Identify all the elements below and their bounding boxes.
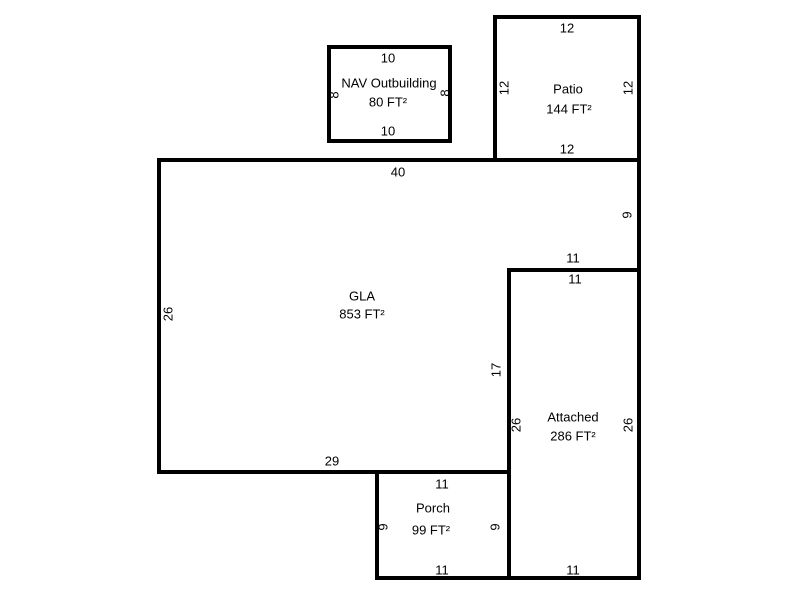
outbuilding-name: NAV Outbuilding <box>341 77 436 90</box>
porch-dim-right: 9 <box>489 523 502 530</box>
wall-outbuilding-top <box>327 45 452 49</box>
gla-dim-top: 40 <box>391 166 405 179</box>
patio-dim-top: 12 <box>560 22 574 35</box>
porch-area: 99 FT² <box>412 524 450 537</box>
patio-dim-left: 12 <box>498 81 511 95</box>
attached-dim-bottom: 11 <box>566 564 580 577</box>
attached-dim-top: 11 <box>568 273 582 286</box>
gla-dim-left: 26 <box>162 307 175 321</box>
gla-dim-notch-top: 11 <box>566 252 580 265</box>
wall-bottom-outer <box>375 576 641 580</box>
porch-dim-bottom: 11 <box>435 564 449 577</box>
wall-outbuilding-bottom <box>327 139 452 143</box>
gla-area: 853 FT² <box>339 308 385 321</box>
wall-right-outer <box>637 15 641 580</box>
gla-dim-right-upper: 9 <box>621 211 634 218</box>
outbuilding-dim-bottom: 10 <box>381 125 395 138</box>
gla-dim-inner-right: 17 <box>490 363 503 377</box>
outbuilding-dim-top: 10 <box>381 52 395 65</box>
patio-name: Patio <box>553 83 583 96</box>
patio-dim-right: 12 <box>622 81 635 95</box>
wall-patio-top <box>493 15 641 19</box>
porch-name: Porch <box>416 502 450 515</box>
patio-area: 144 FT² <box>546 103 592 116</box>
patio-dim-bottom: 12 <box>560 143 574 156</box>
wall-gla-top <box>157 158 641 162</box>
wall-gla-bottom <box>157 470 511 474</box>
attached-dim-left: 26 <box>510 418 523 432</box>
outbuilding-dim-right: 8 <box>439 89 452 96</box>
outbuilding-area: 80 FT² <box>369 96 407 109</box>
attached-dim-right: 26 <box>622 418 635 432</box>
gla-name: GLA <box>349 290 375 303</box>
porch-dim-left: 9 <box>377 523 390 530</box>
attached-area: 286 FT² <box>550 430 596 443</box>
outbuilding-dim-left: 8 <box>328 91 341 98</box>
attached-name: Attached <box>547 411 598 424</box>
gla-dim-bottom: 29 <box>325 455 339 468</box>
floorplan-sketch: 10 NAV Outbuilding 80 FT² 8 8 10 12 Pati… <box>0 0 800 600</box>
porch-dim-top: 11 <box>435 478 449 491</box>
